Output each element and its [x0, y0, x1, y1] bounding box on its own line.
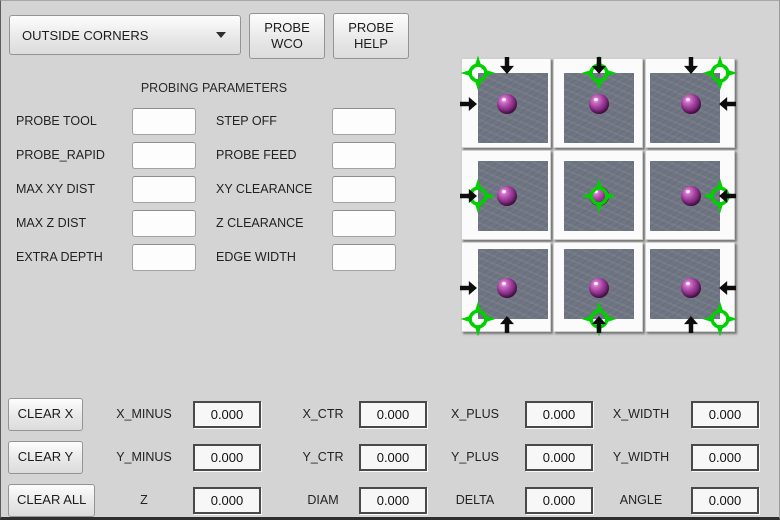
y-minus-label: Y_MINUS	[89, 441, 199, 474]
arrow-left-icon	[719, 97, 736, 111]
probe-ball-icon	[589, 278, 609, 298]
probe-mode-select[interactable]: OUTSIDE CORNERS	[9, 15, 241, 55]
probe-image-center[interactable]	[553, 150, 643, 240]
probe-feed-label: PROBE FEED	[216, 142, 297, 169]
param-row: EXTRA DEPTH EDGE WIDTH	[1, 244, 427, 271]
x-plus-dro: 0.000	[525, 401, 593, 428]
max-xy-dist-label: MAX XY DIST	[16, 176, 95, 203]
probe-screen-window: OUTSIDE CORNERS PROBE WCO PROBE HELP PRO…	[0, 0, 780, 520]
probe-ball-icon	[497, 278, 517, 298]
probe-ball-icon	[497, 94, 517, 114]
xy-clearance-label: XY CLEARANCE	[216, 176, 312, 203]
step-off-input[interactable]	[332, 108, 396, 135]
target-crosshair-icon	[460, 301, 496, 337]
arrow-left-icon	[719, 281, 736, 295]
probe-image-top-left-corner[interactable]	[461, 58, 551, 148]
param-row: PROBE TOOL STEP OFF	[1, 108, 427, 135]
param-row: MAX Z DIST Z CLEARANCE	[1, 210, 427, 237]
z-dro: 0.000	[193, 487, 261, 514]
delta-dro: 0.000	[525, 487, 593, 514]
target-crosshair-icon	[581, 178, 617, 214]
target-crosshair-icon	[702, 301, 738, 337]
probe-image-top-edge[interactable]	[553, 58, 643, 148]
y-plus-label: Y_PLUS	[420, 441, 530, 474]
arrow-right-icon	[460, 97, 477, 111]
probing-parameters-title: PROBING PARAMETERS	[1, 81, 427, 95]
clear-x-button[interactable]: CLEAR X	[8, 398, 83, 431]
arrow-down-icon	[684, 57, 698, 74]
edge-width-input[interactable]	[332, 244, 396, 271]
y-width-label: Y_WIDTH	[586, 441, 696, 474]
probe-image-top-right-corner[interactable]	[645, 58, 735, 148]
x-plus-label: X_PLUS	[420, 398, 530, 431]
probe-tool-label: PROBE TOOL	[16, 108, 97, 135]
probe-tool-input[interactable]	[132, 108, 196, 135]
probe-image-left-edge[interactable]	[461, 150, 551, 240]
probe-rapid-label: PROBE_RAPID	[16, 142, 105, 169]
probe-position-grid	[461, 58, 735, 332]
z-clearance-input[interactable]	[332, 210, 396, 237]
x-ctr-dro: 0.000	[359, 401, 427, 428]
probe-image-right-edge[interactable]	[645, 150, 735, 240]
y-width-dro: 0.000	[691, 444, 759, 471]
probe-ball-icon	[497, 186, 517, 206]
arrow-right-icon	[460, 281, 477, 295]
max-z-dist-input[interactable]	[132, 210, 196, 237]
probe-ball-icon	[681, 186, 701, 206]
y-minus-dro: 0.000	[193, 444, 261, 471]
z-label: Z	[89, 484, 199, 517]
probe-image-bottom-right-corner[interactable]	[645, 242, 735, 332]
extra-depth-label: EXTRA DEPTH	[16, 244, 103, 271]
probe-ball-icon	[681, 278, 701, 298]
edge-width-label: EDGE WIDTH	[216, 244, 296, 271]
probe-help-button[interactable]: PROBE HELP	[333, 13, 409, 59]
y-plus-dro: 0.000	[525, 444, 593, 471]
diam-dro: 0.000	[359, 487, 427, 514]
angle-dro: 0.000	[691, 487, 759, 514]
x-width-dro: 0.000	[691, 401, 759, 428]
max-z-dist-label: MAX Z DIST	[16, 210, 86, 237]
max-xy-dist-input[interactable]	[132, 176, 196, 203]
target-crosshair-icon	[460, 55, 496, 91]
probe-ball-icon	[681, 94, 701, 114]
probe-image-bottom-edge[interactable]	[553, 242, 643, 332]
probe-feed-input[interactable]	[332, 142, 396, 169]
x-minus-label: X_MINUS	[89, 398, 199, 431]
clear-all-button[interactable]: CLEAR ALL	[8, 484, 95, 517]
delta-label: DELTA	[420, 484, 530, 517]
y-ctr-dro: 0.000	[359, 444, 427, 471]
results-row-y: CLEAR Y Y_MINUS 0.000 Y_CTR 0.000 Y_PLUS…	[1, 441, 780, 474]
x-minus-dro: 0.000	[193, 401, 261, 428]
param-row: PROBE_RAPID PROBE FEED	[1, 142, 427, 169]
arrow-down-icon	[500, 57, 514, 74]
results-row-x: CLEAR X X_MINUS 0.000 X_CTR 0.000 X_PLUS…	[1, 398, 780, 431]
probe-ball-icon	[589, 94, 609, 114]
extra-depth-input[interactable]	[132, 244, 196, 271]
probe-wco-button[interactable]: PROBE WCO	[249, 13, 325, 59]
target-crosshair-icon	[702, 55, 738, 91]
step-off-label: STEP OFF	[216, 108, 277, 135]
results-row-z: CLEAR ALL Z 0.000 DIAM 0.000 DELTA 0.000…	[1, 484, 780, 517]
chevron-down-icon	[216, 32, 226, 38]
clear-y-button[interactable]: CLEAR Y	[8, 441, 83, 474]
xy-clearance-input[interactable]	[332, 176, 396, 203]
angle-label: ANGLE	[586, 484, 696, 517]
probe-mode-value: OUTSIDE CORNERS	[10, 28, 216, 43]
param-row: MAX XY DIST XY CLEARANCE	[1, 176, 427, 203]
probe-rapid-input[interactable]	[132, 142, 196, 169]
probe-image-bottom-left-corner[interactable]	[461, 242, 551, 332]
z-clearance-label: Z CLEARANCE	[216, 210, 304, 237]
x-width-label: X_WIDTH	[586, 398, 696, 431]
